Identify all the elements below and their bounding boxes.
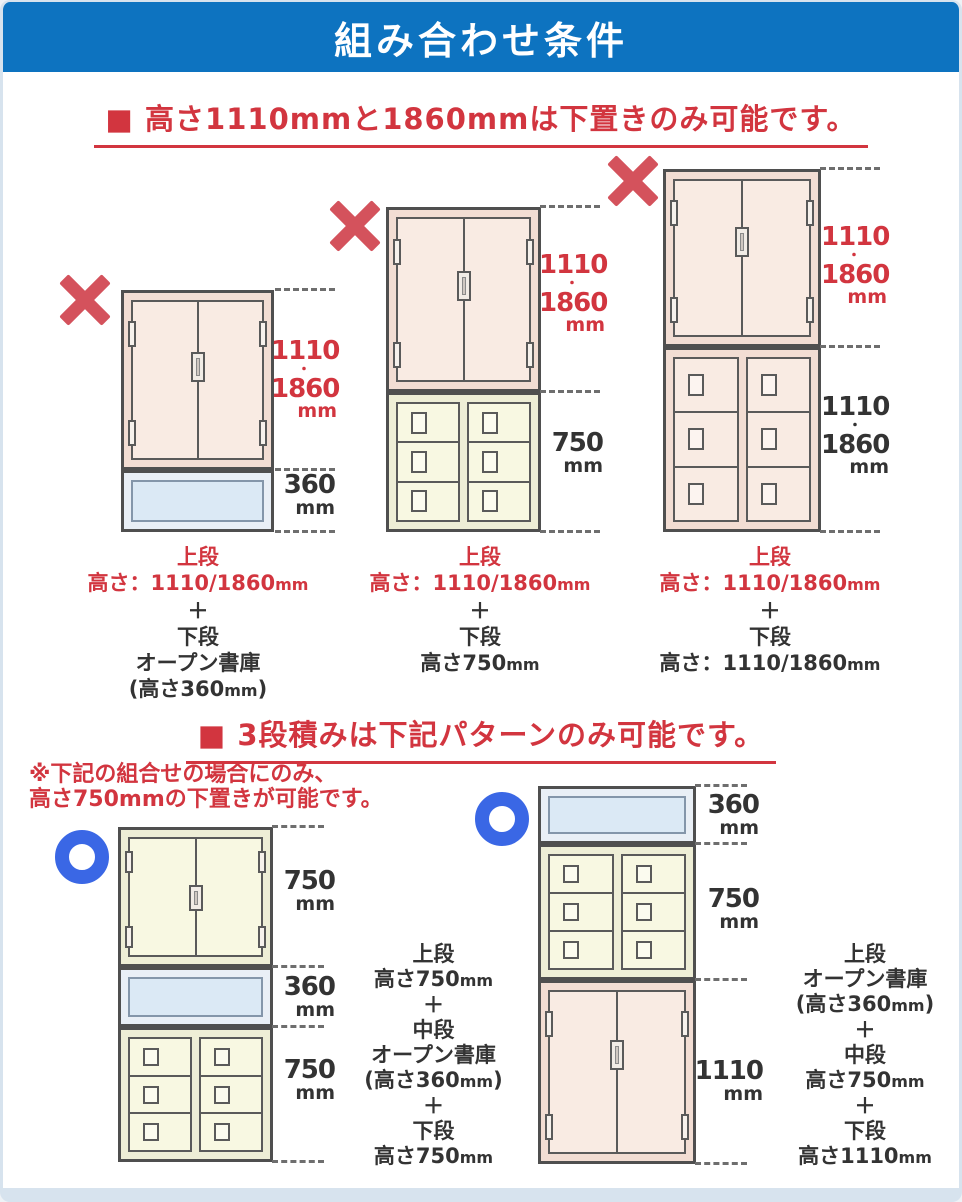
dimension-label: 750 mm: [695, 886, 759, 932]
hinge: [258, 851, 266, 873]
drawer: [623, 856, 685, 894]
dim-unit: mm: [271, 895, 335, 914]
dim-unit: mm: [695, 913, 759, 932]
drawer-handle: [688, 374, 704, 396]
section2-note: ※下記の組合せの場合にのみ、 高さ750mmの下置きが可能です。: [29, 762, 383, 812]
hinge: [806, 297, 814, 323]
caption-line: 高さ1110mm: [765, 1144, 962, 1170]
caption-line: 高さ：1110/1860mm: [625, 570, 915, 598]
upper-cabinet-doors: [386, 207, 541, 392]
section2-heading-row: ■ 3段積みは下記パターンのみ可能です。: [3, 712, 959, 764]
lower-cabinet-doors: [538, 980, 696, 1164]
dimension-label: 1110 ・ 1860 mm: [271, 338, 337, 421]
caption-line: 下段: [331, 1119, 536, 1144]
section1-heading: ■ 高さ1110mmと1860mmは下置きのみ可能です。: [94, 96, 869, 148]
drawer: [550, 894, 612, 932]
x-mark-icon: [61, 276, 109, 324]
caption-line: ＋: [345, 598, 615, 624]
section2-heading: ■ 3段積みは下記パターンのみ可能です。: [186, 712, 776, 764]
dim-value: 360: [271, 472, 335, 499]
drawer-handle: [761, 374, 777, 396]
door-split-line: [741, 181, 743, 335]
drawer: [398, 483, 458, 520]
dimension-label: 1110 ・ 1860 mm: [539, 252, 605, 335]
caption-line: オープン書庫: [58, 650, 338, 676]
hinge: [125, 851, 133, 873]
hinge: [393, 342, 401, 368]
drawer: [748, 413, 810, 467]
door-panels: [131, 300, 264, 460]
drawer-handle: [482, 451, 498, 473]
dim-value: 1110: [821, 394, 889, 421]
hinge: [681, 1114, 689, 1140]
caption-line: (高さ360mm): [765, 992, 962, 1018]
drawer: [201, 1077, 261, 1115]
caption-line: 高さ750mm: [331, 1144, 536, 1170]
dimension-label: 750 mm: [271, 868, 335, 914]
guide-dash: [695, 842, 747, 845]
hinge: [128, 420, 136, 446]
guide-dash: [540, 390, 600, 393]
drawer-handle: [688, 483, 704, 505]
note-line: ※下記の組合せの場合にのみ、: [29, 762, 383, 787]
dimension-label: 1110 ・ 1860 mm: [821, 394, 889, 477]
guide-dash: [695, 784, 747, 787]
drawer-handle: [411, 412, 427, 434]
dimension-label: 1110 mm: [693, 1058, 763, 1104]
hinge: [258, 926, 266, 948]
hinge: [545, 1114, 553, 1140]
caption-line: ＋: [58, 598, 338, 624]
guide-dash: [272, 965, 324, 968]
page-title-banner: 組み合わせ条件: [3, 2, 959, 72]
drawer-handle: [636, 865, 652, 883]
drawer-unit: [386, 392, 541, 532]
drawer-handle: [411, 490, 427, 512]
caption-line: (高さ360mm): [58, 676, 338, 704]
guide-dash: [272, 825, 324, 828]
caption: 上段 オープン書庫 (高さ360mm) ＋ 中段 高さ750mm ＋ 下段 高さ…: [765, 942, 962, 1170]
drawer-handle: [563, 941, 579, 959]
drawer-handle: [143, 1086, 159, 1104]
door-handle: [735, 227, 749, 257]
open-shelf-unit: [118, 967, 273, 1027]
door-panels: [128, 837, 263, 957]
drawer: [201, 1039, 261, 1077]
caption-line: 高さ750mm: [331, 967, 536, 993]
hinge: [806, 200, 814, 226]
dim-value: 750: [271, 1057, 335, 1084]
drawer: [623, 932, 685, 968]
drawer-unit: [538, 844, 696, 980]
x-mark-icon: [331, 202, 379, 250]
hinge: [259, 420, 267, 446]
guide-dash: [272, 1025, 324, 1028]
dim-unit: mm: [693, 1085, 763, 1104]
drawer: [623, 894, 685, 932]
guide-dash: [820, 345, 880, 348]
hinge: [526, 239, 534, 265]
section1-heading-row: ■ 高さ1110mmと1860mmは下置きのみ可能です。: [3, 96, 959, 148]
drawer-handle: [761, 483, 777, 505]
caption-line: 上段: [625, 544, 915, 570]
caption-line: 高さ750mm: [765, 1068, 962, 1094]
drawer-grid: [128, 1037, 263, 1152]
drawer: [130, 1077, 190, 1115]
caption: 上段 高さ750mm ＋ 中段 オープン書庫 (高さ360mm) ＋ 下段 高さ…: [331, 942, 536, 1170]
open-shelf-opening: [131, 480, 264, 522]
door-handle: [457, 271, 471, 301]
drawer: [130, 1039, 190, 1077]
drawer: [550, 932, 612, 968]
drawer-handle: [214, 1123, 230, 1141]
open-shelf-unit: [538, 786, 696, 844]
guide-dash: [820, 167, 880, 170]
dim-value: 360: [271, 974, 335, 1001]
drawer-handle: [214, 1048, 230, 1066]
hinge: [128, 321, 136, 347]
upper-cabinet-doors: [121, 290, 274, 470]
caption-line: 上段: [58, 544, 338, 570]
dim-unit: mm: [695, 819, 759, 838]
caption-line: 上段: [765, 942, 962, 967]
drawer-handle: [214, 1086, 230, 1104]
door-split-line: [616, 992, 618, 1152]
caption-line: ＋: [331, 1094, 536, 1119]
drawer: [550, 856, 612, 894]
door-handle: [191, 352, 205, 382]
door-handle: [189, 885, 203, 911]
caption-line: 下段: [345, 624, 615, 650]
caption: 上段 高さ：1110/1860mm ＋ 下段 高さ：1110/1860mm: [625, 544, 915, 678]
door-panels: [673, 179, 811, 337]
caption-line: オープン書庫: [331, 1043, 536, 1068]
dim-value: 750: [271, 868, 335, 895]
guide-dash: [540, 530, 600, 533]
caption-line: (高さ360mm): [331, 1068, 536, 1094]
door-panels: [396, 217, 531, 382]
drawer: [469, 443, 529, 482]
drawer-grid: [548, 854, 686, 970]
dim-unit: mm: [821, 458, 889, 477]
caption-line: 上段: [331, 942, 536, 967]
drawer: [748, 359, 810, 413]
caption: 上段 高さ：1110/1860mm ＋ 下段 オープン書庫 (高さ360mm): [58, 544, 338, 704]
drawer: [675, 468, 737, 520]
drawer: [469, 483, 529, 520]
dim-value: 360: [695, 792, 759, 819]
drawer-unit: [118, 1027, 273, 1162]
drawer-handle: [761, 428, 777, 450]
dimension-label: 1110 ・ 1860 mm: [821, 224, 887, 307]
dimension-label: 360 mm: [271, 472, 335, 518]
guide-dash: [695, 978, 747, 981]
caption-line: 中段: [765, 1043, 962, 1068]
dim-unit: mm: [271, 499, 335, 518]
drawer: [398, 443, 458, 482]
circle-ok-icon: [475, 792, 529, 846]
dimension-label: 750 mm: [271, 1057, 335, 1103]
drawer-unit: [663, 347, 821, 532]
dim-value: 1110: [539, 252, 605, 279]
caption-line: ＋: [765, 1018, 962, 1043]
dim-value: 1110: [271, 338, 337, 365]
drawer-handle: [482, 412, 498, 434]
door-panels: [548, 990, 686, 1154]
hinge: [681, 1011, 689, 1037]
caption-line: 高さ：1110/1860mm: [625, 650, 915, 678]
caption-line: ＋: [331, 993, 536, 1018]
drawer-handle: [411, 451, 427, 473]
open-shelf-opening: [128, 977, 263, 1017]
upper-cabinet-doors: [663, 169, 821, 347]
drawer-handle: [563, 903, 579, 921]
hinge: [259, 321, 267, 347]
caption-line: ＋: [625, 598, 915, 624]
guide-dash: [272, 1160, 324, 1163]
door-handle: [610, 1040, 624, 1070]
hinge: [670, 200, 678, 226]
drawer-handle: [688, 428, 704, 450]
drawer-handle: [482, 490, 498, 512]
drawer: [748, 468, 810, 520]
dim-value: 1860: [539, 290, 605, 317]
hinge: [526, 342, 534, 368]
dim-unit: mm: [271, 1001, 335, 1020]
caption-line: 上段: [345, 544, 615, 570]
caption-line: ＋: [765, 1094, 962, 1119]
dim-unit: mm: [539, 457, 603, 476]
dim-value: 750: [539, 430, 603, 457]
guide-dash: [540, 205, 600, 208]
dim-unit: mm: [271, 402, 337, 421]
drawer: [469, 404, 529, 443]
caption: 上段 高さ：1110/1860mm ＋ 下段 高さ750mm: [345, 544, 615, 678]
dim-unit: mm: [539, 316, 605, 335]
drawer-handle: [636, 941, 652, 959]
dim-value: 1110: [821, 224, 887, 251]
upper-cabinet-doors: [118, 827, 273, 967]
caption-line: 下段: [625, 624, 915, 650]
note-line: 高さ750mmの下置きが可能です。: [29, 787, 383, 812]
dim-value: 750: [695, 886, 759, 913]
dimension-label: 750 mm: [539, 430, 603, 476]
drawer-grid: [396, 402, 531, 522]
caption-line: 高さ：1110/1860mm: [58, 570, 338, 598]
combination-conditions-infographic: 組み合わせ条件 ■ 高さ1110mmと1860mmは下置きのみ可能です。 111…: [0, 0, 962, 1202]
guide-dash: [820, 530, 880, 533]
dim-value: 1110: [693, 1058, 763, 1085]
dim-unit: mm: [271, 1084, 335, 1103]
drawer: [675, 413, 737, 467]
caption-line: 高さ：1110/1860mm: [345, 570, 615, 598]
guide-dash: [695, 1162, 747, 1165]
open-shelf-opening: [548, 796, 686, 834]
guide-dash: [275, 530, 335, 533]
caption-line: 下段: [58, 624, 338, 650]
hinge: [545, 1011, 553, 1037]
circle-ok-icon: [55, 830, 109, 884]
drawer-grid: [673, 357, 811, 522]
dimension-label: 360 mm: [695, 792, 759, 838]
dim-value: 1860: [821, 432, 889, 459]
drawer-handle: [143, 1123, 159, 1141]
drawer: [130, 1114, 190, 1150]
drawer-handle: [636, 903, 652, 921]
drawer: [201, 1114, 261, 1150]
hinge: [125, 926, 133, 948]
hinge: [670, 297, 678, 323]
dim-unit: mm: [821, 288, 887, 307]
drawer-handle: [143, 1048, 159, 1066]
caption-line: 中段: [331, 1018, 536, 1043]
dim-value: 1860: [821, 262, 887, 289]
drawer: [398, 404, 458, 443]
page-title: 組み合わせ条件: [334, 10, 628, 65]
guide-dash: [275, 288, 335, 291]
drawer-handle: [563, 865, 579, 883]
dim-value: 1860: [271, 376, 337, 403]
open-shelf-unit: [121, 470, 274, 532]
dimension-label: 360 mm: [271, 974, 335, 1020]
drawer: [675, 359, 737, 413]
caption-line: オープン書庫: [765, 967, 962, 992]
caption-line: 下段: [765, 1119, 962, 1144]
caption-line: 高さ750mm: [345, 650, 615, 678]
hinge: [393, 239, 401, 265]
x-mark-icon: [609, 157, 657, 205]
